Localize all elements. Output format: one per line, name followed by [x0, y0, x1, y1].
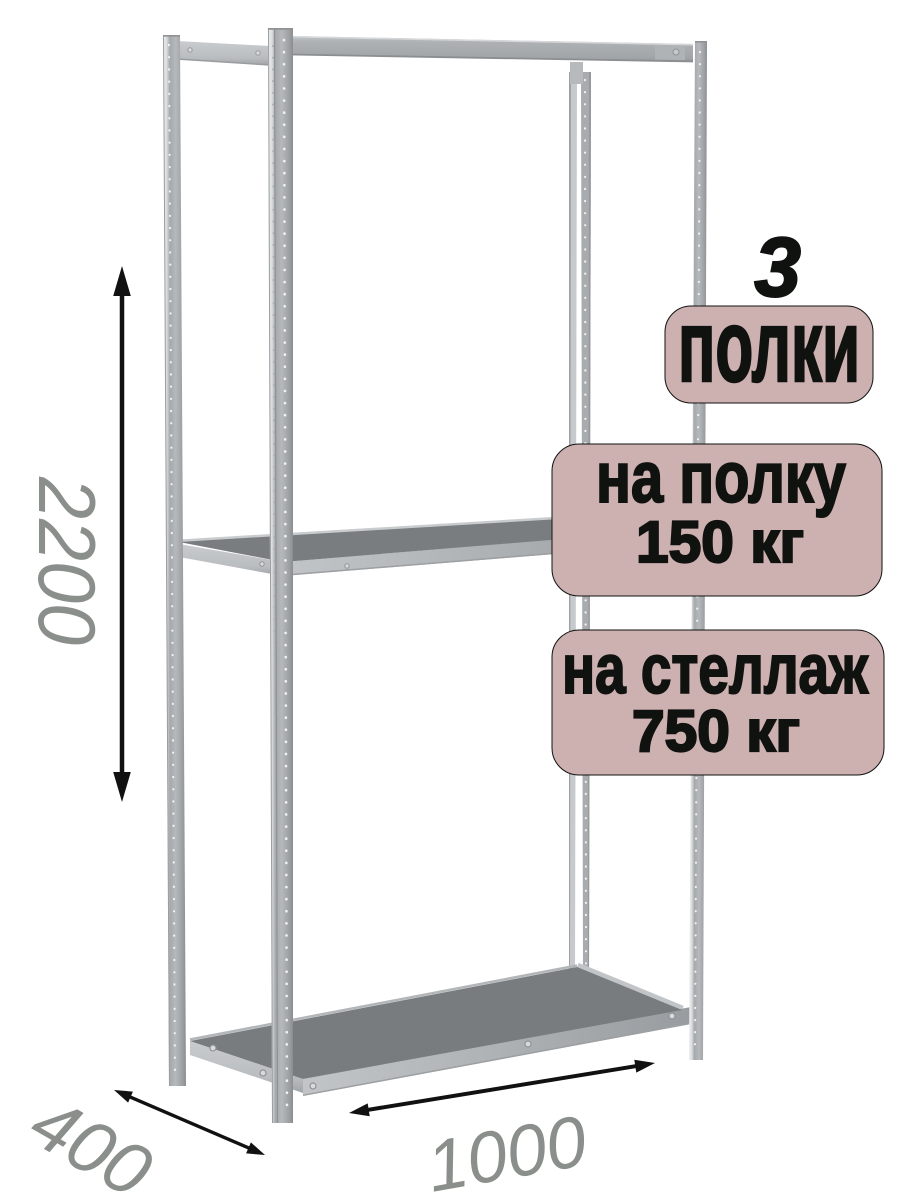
svg-text:полки: полки: [678, 289, 860, 403]
svg-text:750 кг: 750 кг: [632, 699, 800, 764]
svg-text:150 кг: 150 кг: [636, 510, 804, 575]
svg-text:на стеллаж: на стеллаж: [562, 630, 869, 708]
svg-text:на полку: на полку: [596, 439, 846, 518]
svg-text:2200: 2200: [21, 476, 111, 645]
svg-text:1000: 1000: [421, 1101, 593, 1200]
svg-text:400: 400: [17, 1080, 165, 1200]
